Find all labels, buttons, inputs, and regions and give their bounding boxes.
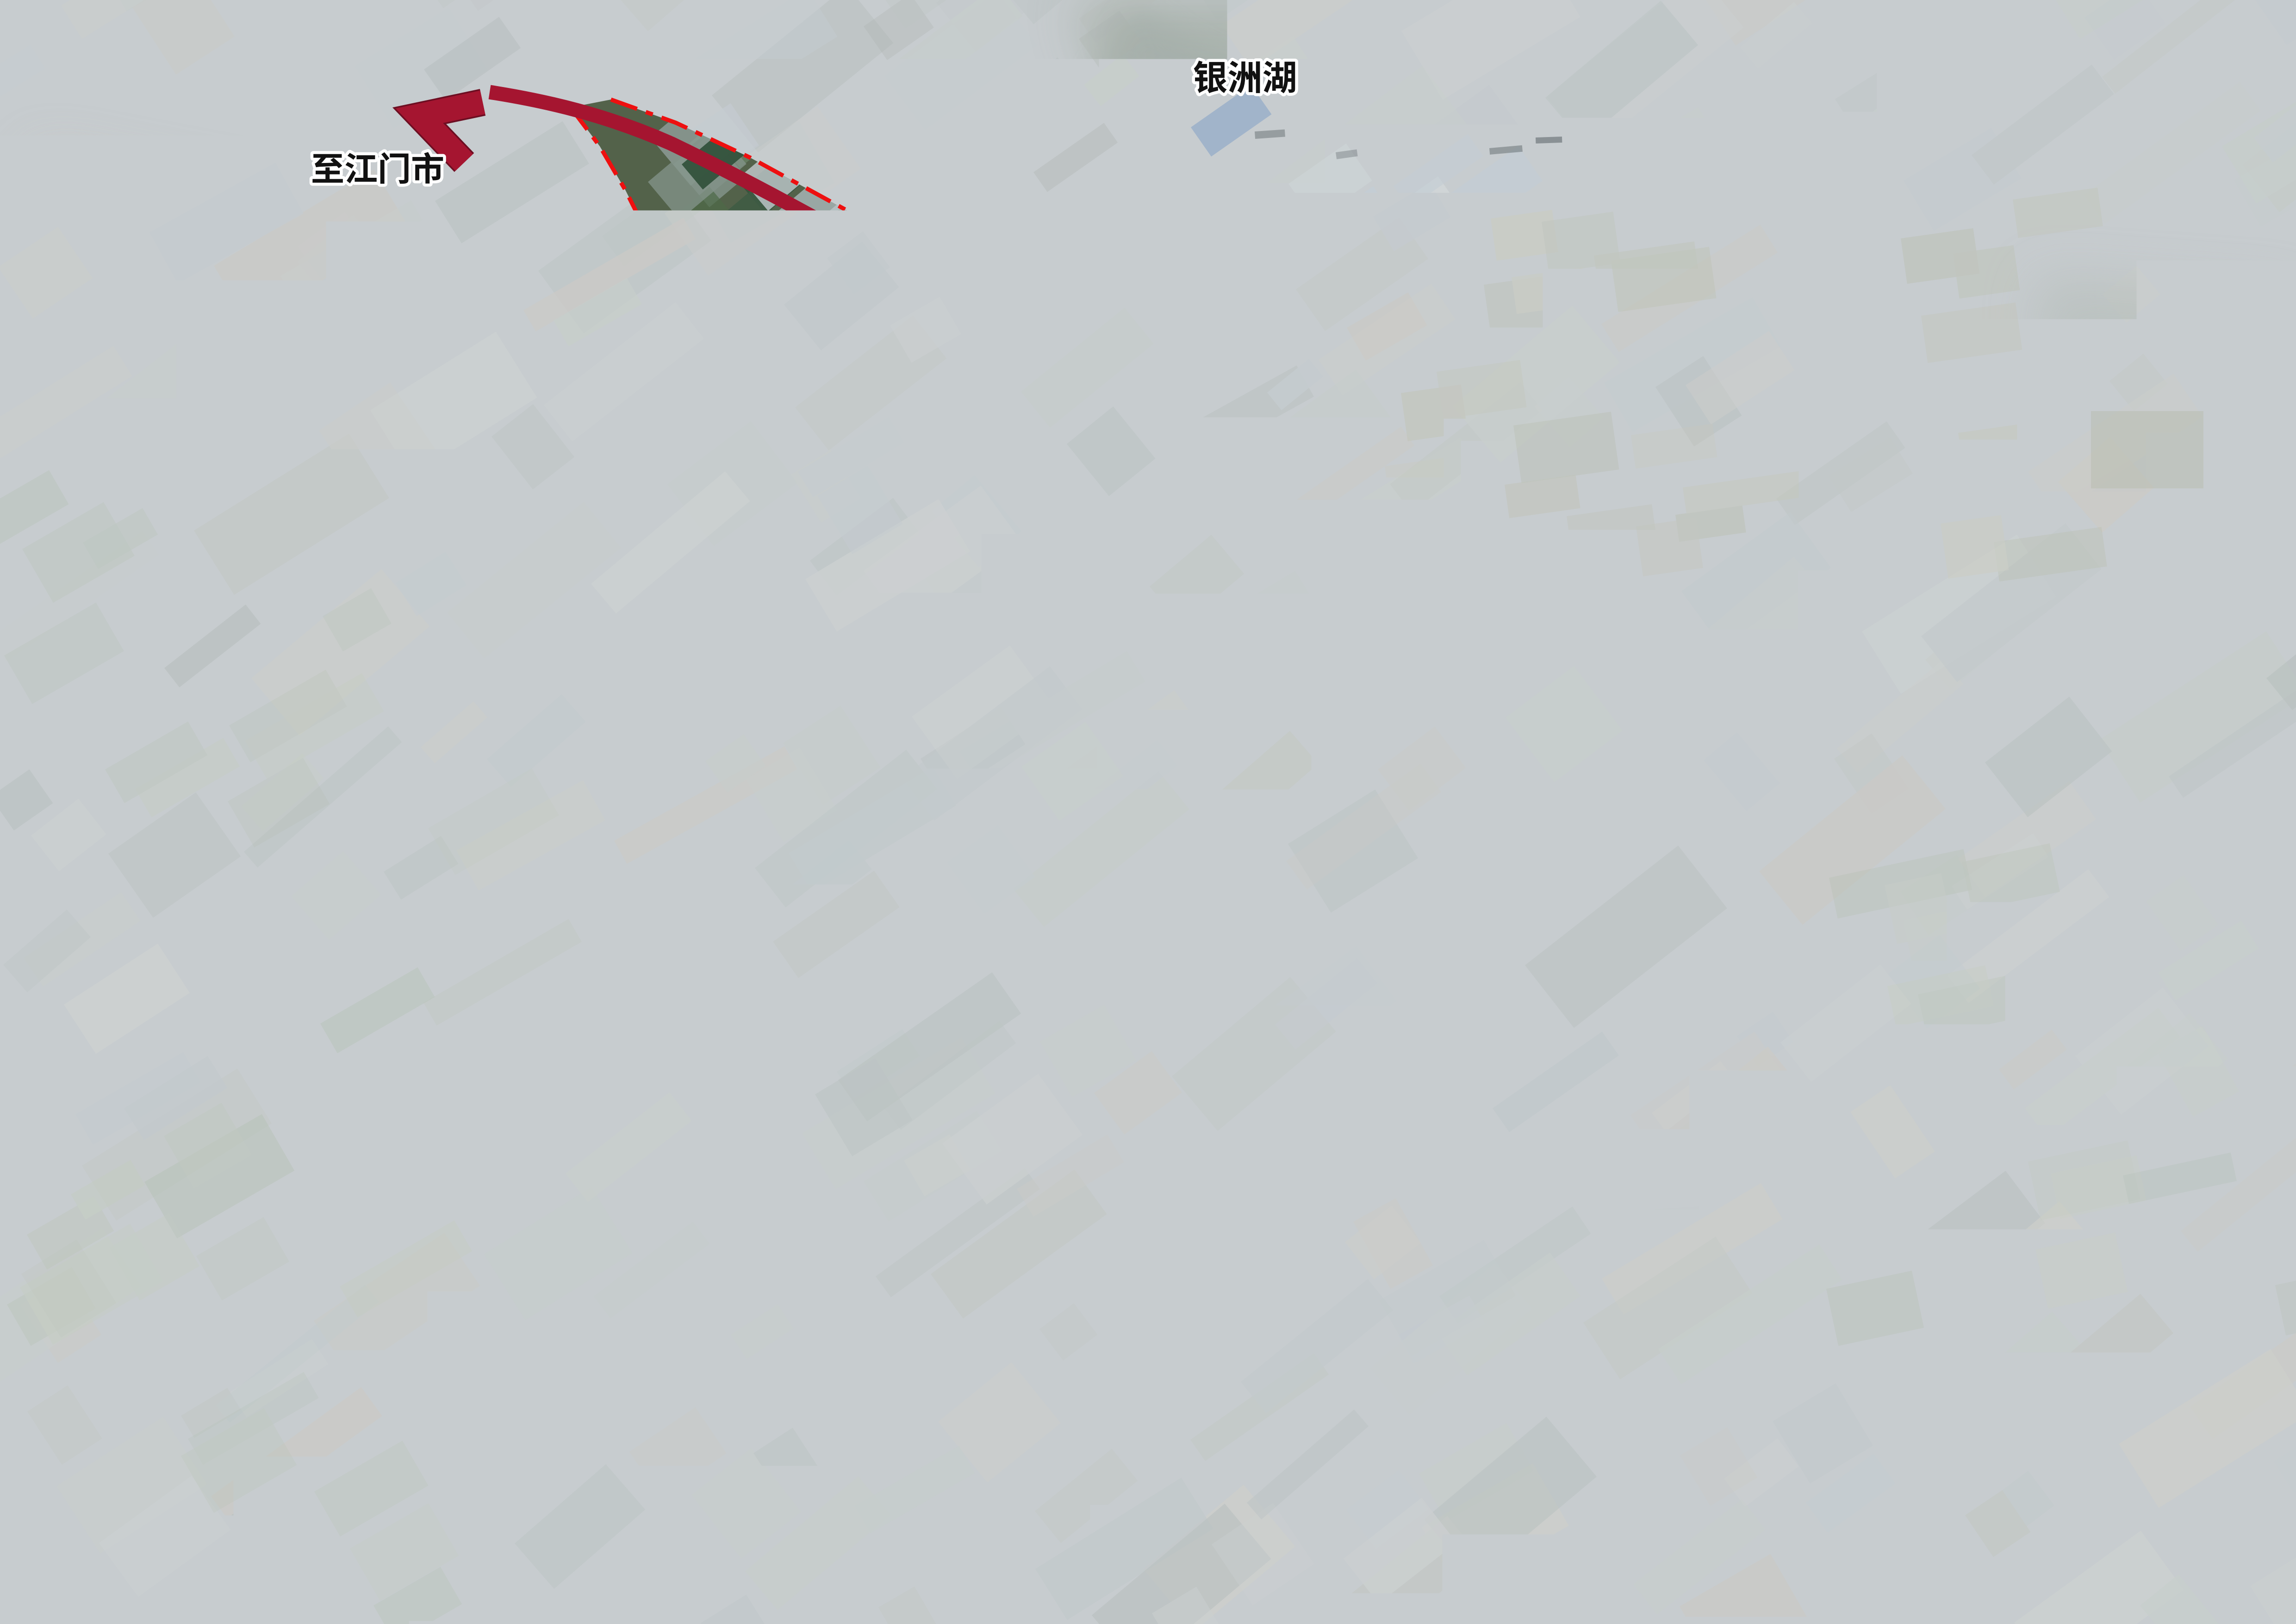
- svg-text:快速路: 快速路: [1900, 1352, 1963, 1382]
- svg-text:龙脊村: 龙脊村: [1309, 1368, 1409, 1416]
- svg-text:支路: 支路: [2161, 1385, 2203, 1415]
- svg-text:0: 0: [1824, 429, 1836, 453]
- svg-text:规划主干道: 规划主干道: [2161, 1416, 2265, 1446]
- svg-text:800M: 800M: [2111, 429, 2164, 453]
- svg-text:规划范围约5.32平方公里: 规划范围约5.32平方公里: [1462, 1172, 1973, 1247]
- svg-text:支路: 支路: [1087, 1261, 1126, 1312]
- svg-text:400: 400: [1966, 389, 2002, 413]
- svg-text:东北村: 东北村: [1824, 999, 1921, 1046]
- svg-text:次干道: 次干道: [1900, 1385, 1963, 1415]
- svg-text:规划范围: 规划范围: [1900, 1416, 1984, 1446]
- svg-text:200: 200: [1890, 429, 1925, 453]
- svg-text:至江门市: 至江门市: [208, 906, 337, 953]
- svg-text:至江门市: 至江门市: [311, 142, 444, 191]
- svg-text:N: N: [1965, 146, 1997, 195]
- svg-text:100: 100: [1851, 389, 1887, 413]
- svg-text:至崖西镇: 至崖西镇: [1176, 1515, 1314, 1566]
- svg-text:图 例: 图 例: [1981, 1285, 2062, 1328]
- svg-text:桥美: 桥美: [1583, 1088, 1648, 1135]
- svg-text:木江村: 木江村: [379, 837, 476, 883]
- svg-text:银洲湖: 银洲湖: [1193, 50, 1297, 100]
- svg-text:主干道: 主干道: [2161, 1352, 2223, 1382]
